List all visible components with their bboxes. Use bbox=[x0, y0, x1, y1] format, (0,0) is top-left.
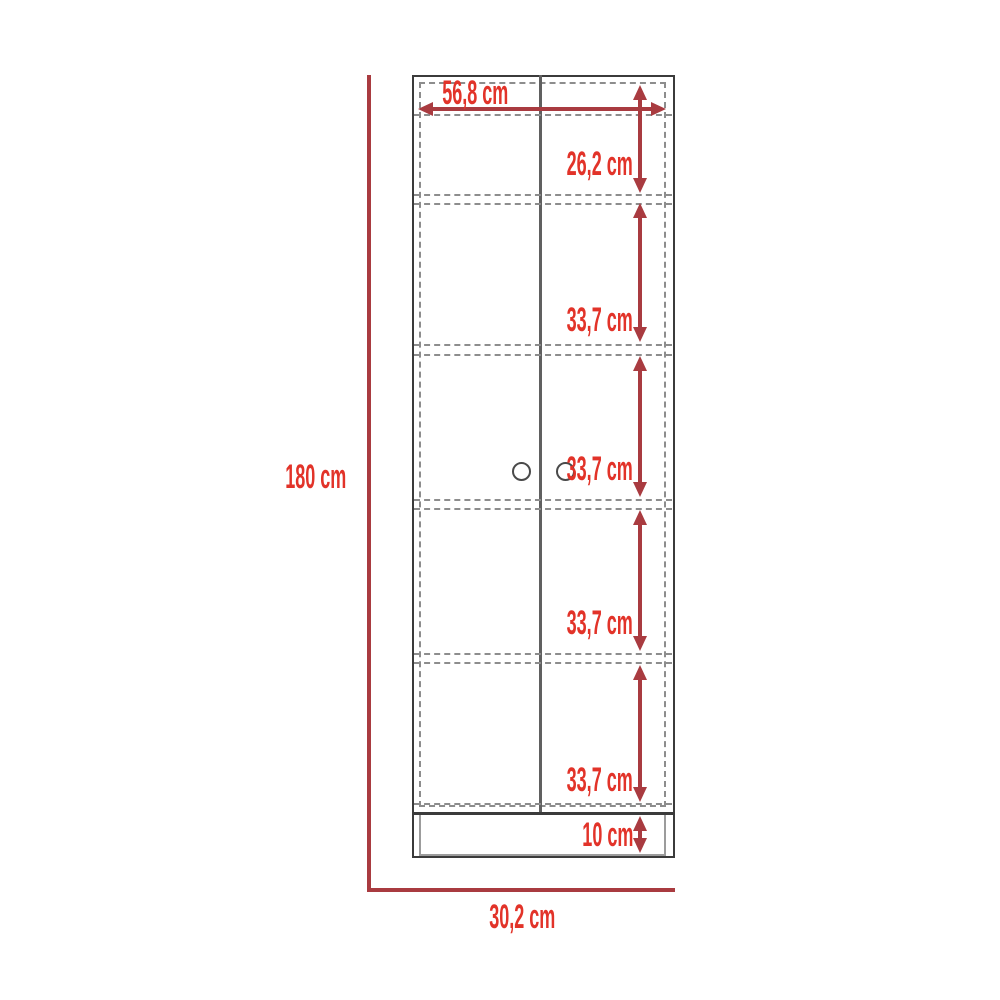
furniture-dimension-diagram: 56,8 cm 26,2 cm 33,7 cm 33,7 cm 33,7 cm … bbox=[0, 0, 1000, 1000]
total-height-label: 180 cm bbox=[285, 460, 346, 494]
section-4-label: 33,7 cm bbox=[567, 763, 633, 797]
total-height-dimension-line bbox=[367, 75, 371, 892]
shelf-line bbox=[414, 344, 672, 346]
section-3-arrow bbox=[632, 510, 648, 651]
section-3-label: 33,7 cm bbox=[567, 606, 633, 640]
total-depth-label: 30,2 cm bbox=[489, 900, 553, 934]
total-depth-dimension-line bbox=[367, 888, 675, 892]
section-2-arrow bbox=[632, 356, 648, 497]
section-1-arrow bbox=[632, 203, 648, 342]
section-2-label: 33,7 cm bbox=[567, 452, 633, 486]
shelf-line bbox=[414, 662, 672, 664]
door-knob-icon bbox=[512, 462, 531, 481]
door-panels-dashed-outline bbox=[419, 82, 666, 807]
section-4-arrow bbox=[632, 665, 648, 802]
top-section-label: 26,2 cm bbox=[567, 147, 633, 181]
shelf-line bbox=[414, 499, 672, 501]
shelf-line bbox=[414, 653, 672, 655]
top-section-arrow bbox=[632, 85, 648, 193]
door-bottom-dashed-line bbox=[414, 803, 672, 805]
shelf-line bbox=[414, 194, 672, 196]
inner-width-label: 56,8 cm bbox=[442, 76, 506, 110]
door-gap-divider bbox=[539, 75, 542, 815]
base-height-arrow bbox=[632, 816, 648, 853]
base-height-label: 10 cm bbox=[582, 818, 633, 852]
section-1-label: 33,7 cm bbox=[567, 303, 633, 337]
